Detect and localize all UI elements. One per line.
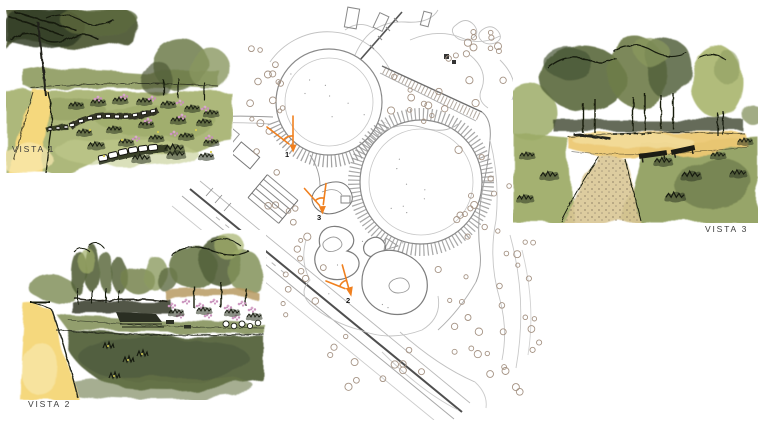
vista-3-sketch — [513, 33, 758, 223]
vista-2-sketch — [16, 230, 266, 400]
vista-3-panel — [513, 33, 758, 223]
stairs — [248, 175, 298, 224]
gravel-texture — [559, 156, 641, 223]
stadium-circle — [274, 49, 385, 161]
vista-2-panel — [16, 230, 266, 400]
marker-number-3: 3 — [317, 213, 321, 222]
presentation-board: 1 2 3 — [0, 0, 768, 431]
vista-3-label: VISTA 3 — [705, 224, 748, 234]
marker-number-2: 2 — [346, 296, 350, 305]
vista-2-label: VISTA 2 — [28, 399, 71, 409]
north-structures — [344, 7, 456, 64]
marker-number-1: 1 — [285, 150, 289, 159]
center-pavilion — [312, 182, 352, 214]
vista-1-label: VISTA 1 — [12, 144, 55, 154]
